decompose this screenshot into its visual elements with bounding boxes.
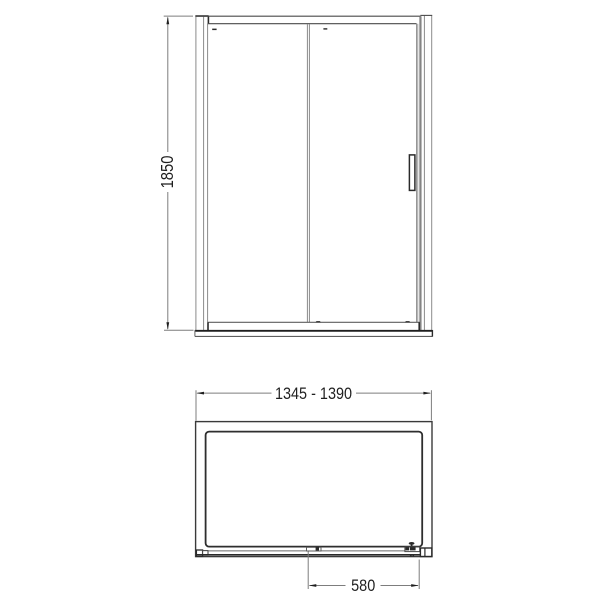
svg-text:1345 - 1390: 1345 - 1390 — [275, 385, 352, 403]
svg-text:580: 580 — [351, 577, 375, 595]
svg-text:1850: 1850 — [158, 156, 177, 189]
